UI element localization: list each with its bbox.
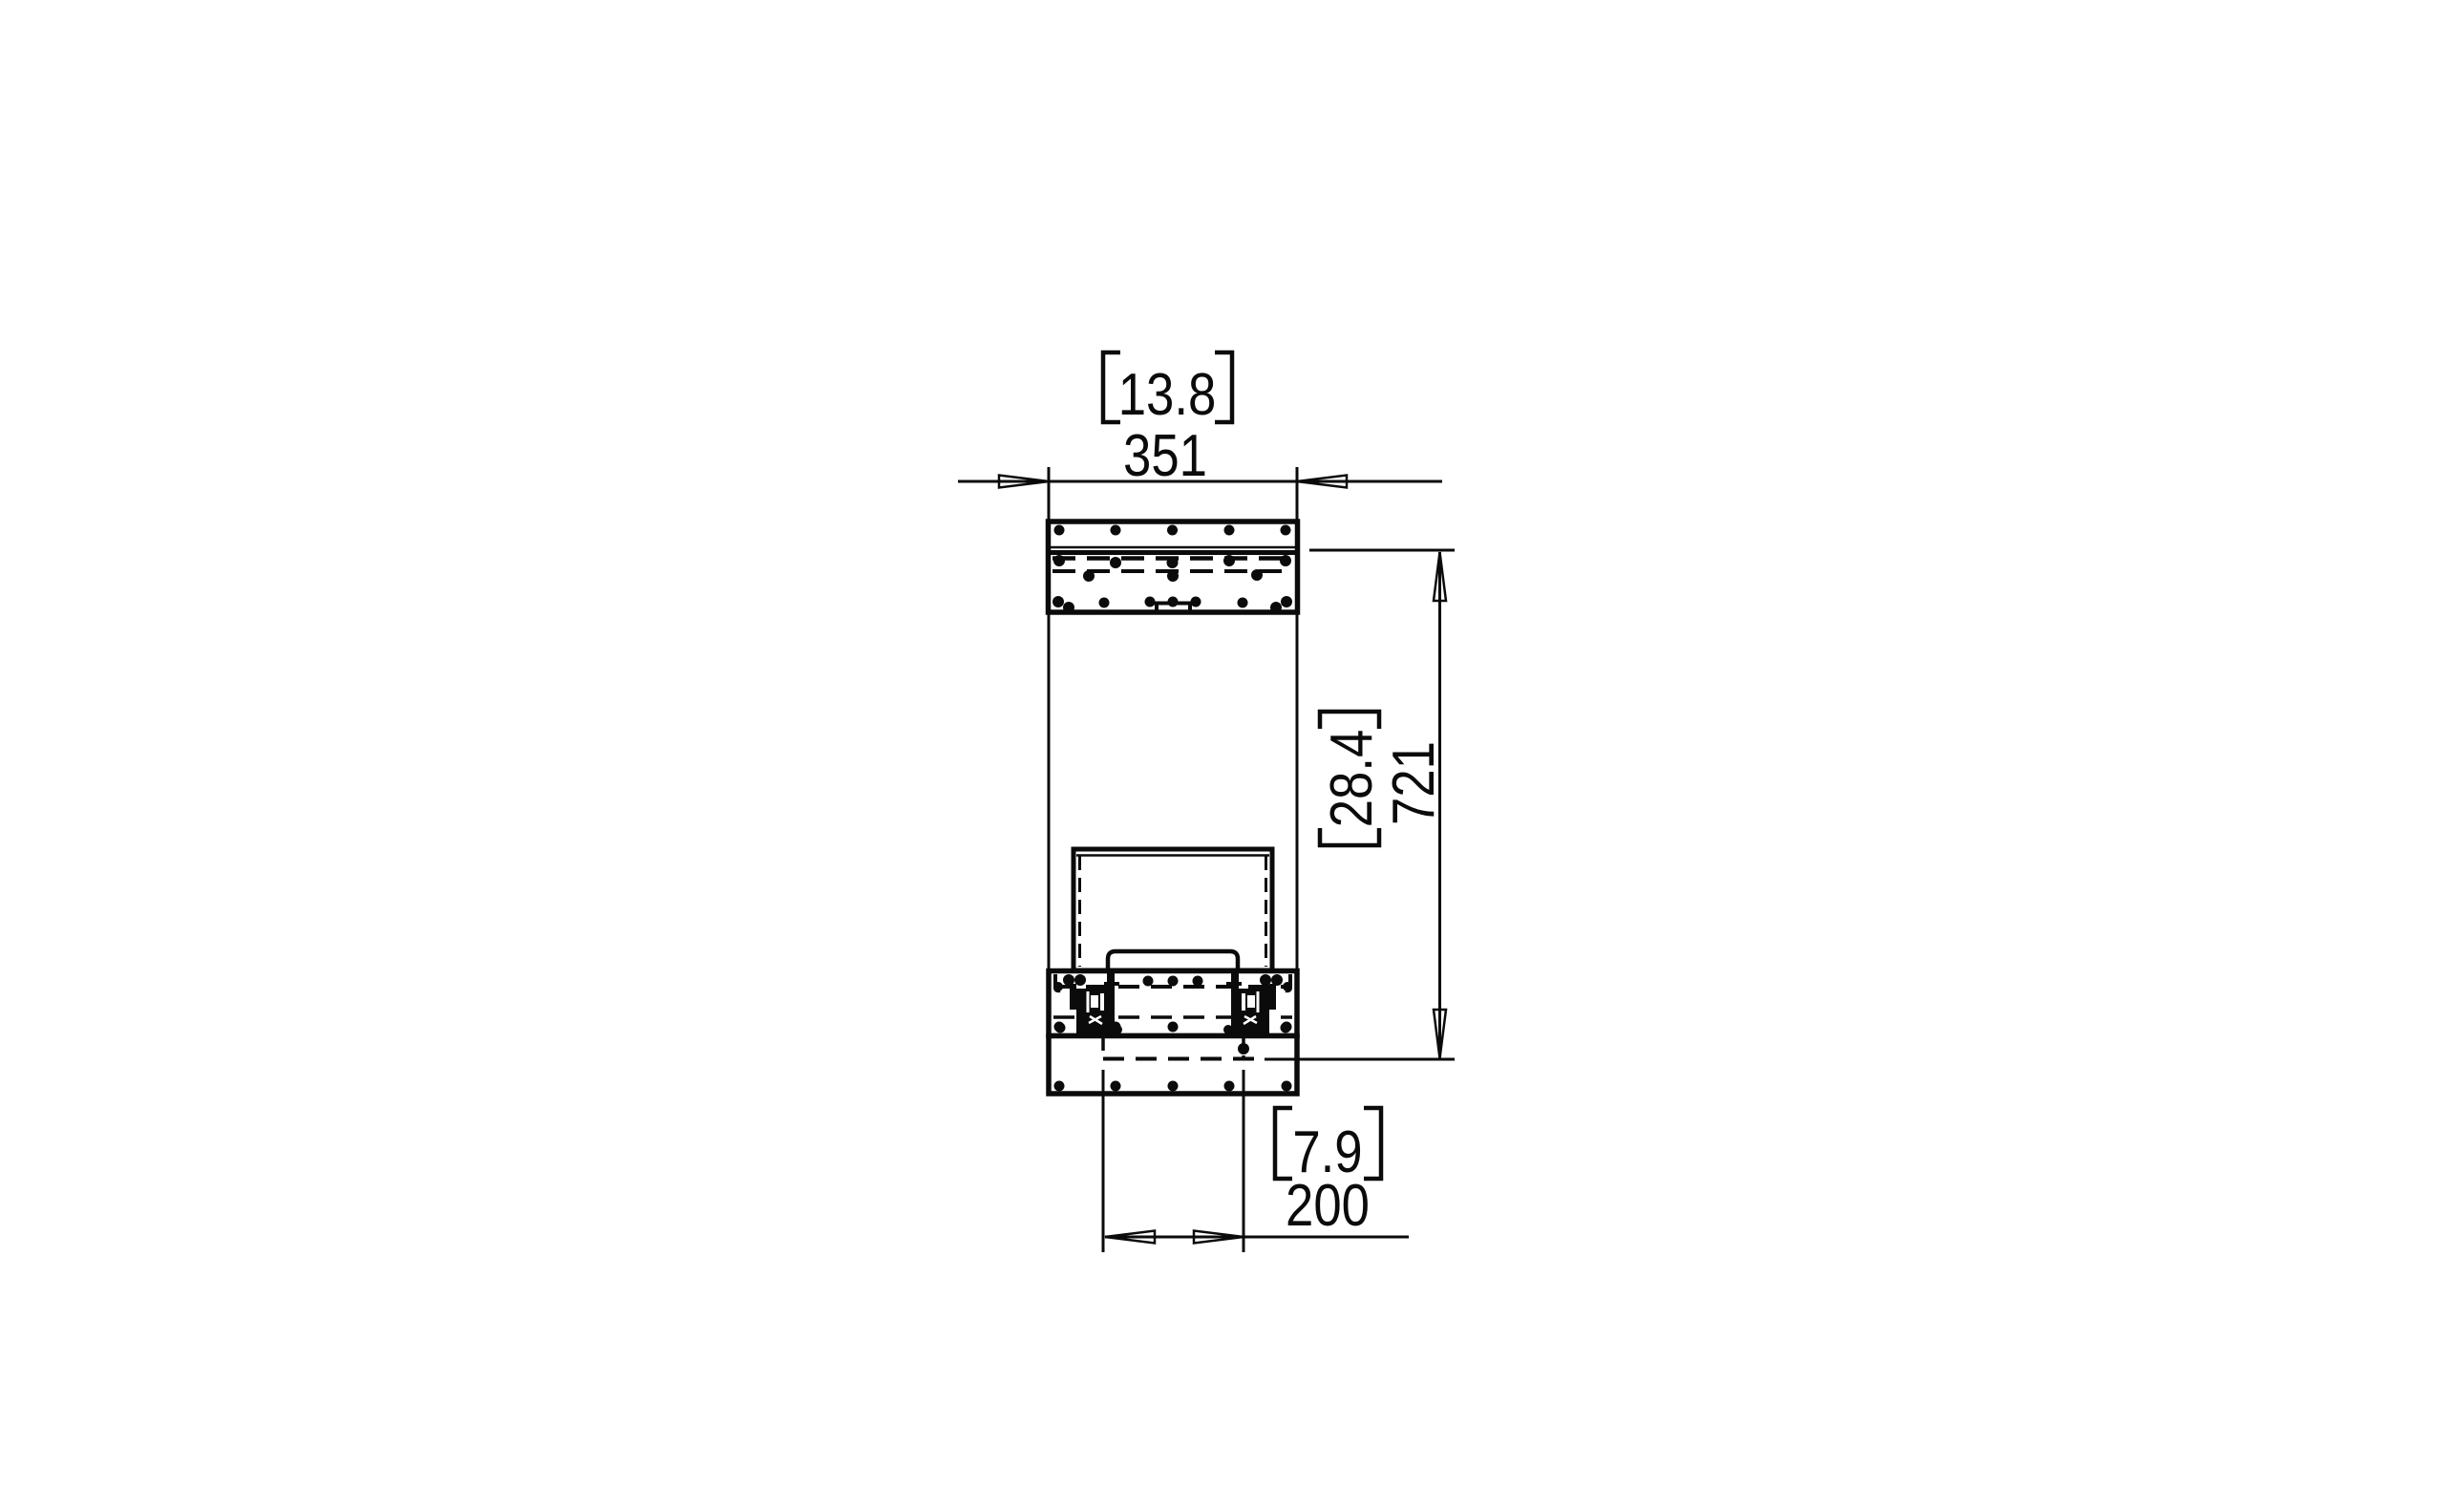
- svg-text:721: 721: [1381, 741, 1447, 825]
- svg-text:200: 200: [1286, 1173, 1370, 1239]
- svg-text:13.8: 13.8: [1118, 362, 1217, 428]
- svg-text:351: 351: [1123, 423, 1207, 489]
- svg-text:28.4: 28.4: [1319, 730, 1385, 828]
